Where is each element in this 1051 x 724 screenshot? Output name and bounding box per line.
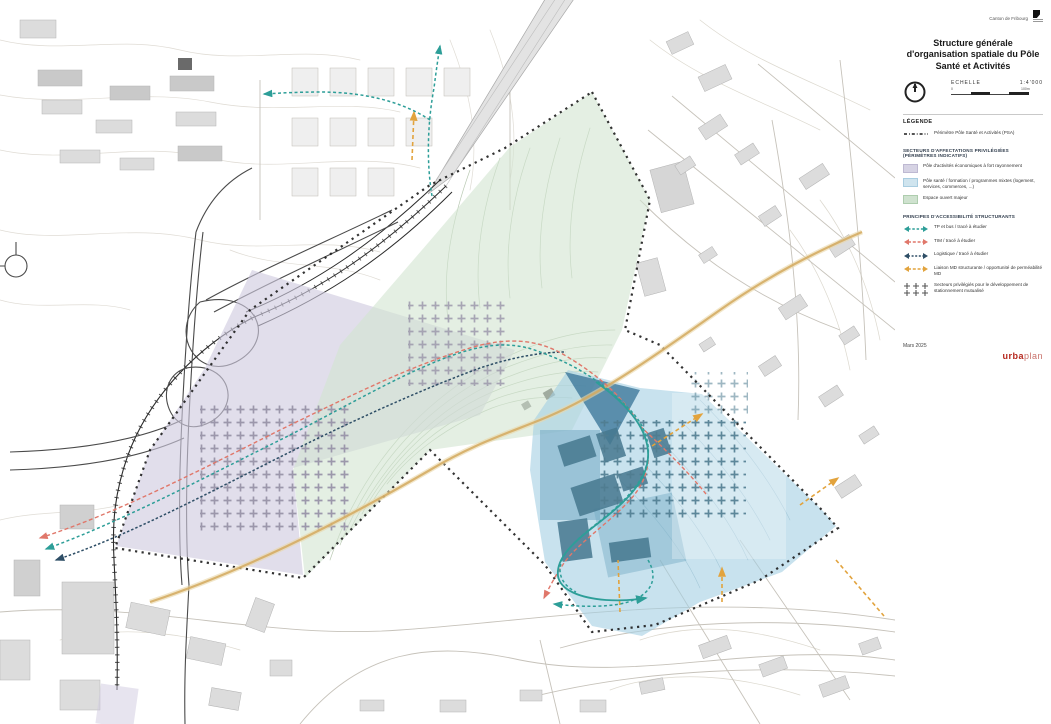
legend-item-label: TP et bus / tracé à étudier — [934, 224, 1043, 230]
perimeter-symbol — [903, 130, 929, 138]
canton-label: Canton de Fribourg — [989, 16, 1028, 21]
blue-swatch — [903, 178, 918, 187]
parking-sector-purple — [200, 402, 350, 534]
legend-item-label: Secteurs privilégiés pour le développeme… — [934, 282, 1043, 294]
legend-title: LÉGENDE — [903, 119, 1043, 125]
tim-arrow-symbol — [903, 238, 929, 246]
plus-grid-symbol — [903, 282, 929, 297]
legend-item-label: Pôle d'activités économiques à fort rayo… — [923, 163, 1043, 169]
legend-item-md: Liaison MD structurante / opportunité de… — [903, 265, 1043, 277]
urbaplan-logo: urbaplan — [903, 351, 1043, 361]
legend-item-tp: TP et bus / tracé à étudier — [903, 224, 1043, 233]
legend-item-label: Logistique / tracé à étudier — [934, 251, 1043, 257]
map-canvas — [0, 0, 895, 724]
scale-label: ECHELLE — [951, 80, 981, 86]
legend-panel: Canton de Fribourg Structure générale d'… — [895, 0, 1051, 724]
zone-purple-fragment — [95, 684, 138, 724]
legend-item-open-space: Espace ouvert majeur — [903, 195, 1043, 205]
north-arrow-icon — [903, 80, 927, 104]
tp-arrow-symbol — [903, 225, 929, 233]
legend-item-health: Pôle santé / formation / programmes mixt… — [903, 178, 1043, 190]
scale-block: ECHELLE 1:4'000 0 100m — [951, 80, 1043, 97]
legend-item-label: Pôle santé / formation / programmes mixt… — [923, 178, 1043, 190]
date-label: Mars 2025 — [903, 343, 1043, 349]
legend-item-label: Périmètre Pôle Santé et Activités (PSA) — [934, 130, 1043, 136]
scale-zero: 0 — [951, 87, 953, 91]
legend-item-label: Liaison MD structurante / opportunité de… — [934, 265, 1043, 277]
md-arrow-symbol — [903, 265, 929, 273]
legend-item-label: TIM / tracé à étudier — [934, 238, 1043, 244]
canton-fribourg-logo — [1033, 10, 1043, 23]
legend-item-logistics: Logistique / tracé à étudier — [903, 251, 1043, 260]
legend-item-parking: Secteurs privilégiés pour le développeme… — [903, 282, 1043, 298]
scale-value: 1:4'000 — [1020, 80, 1043, 86]
divider — [903, 114, 1043, 115]
page-title: Structure générale d'organisation spatia… — [903, 38, 1043, 72]
legend-item-perimeter: Périmètre Pôle Santé et Activités (PSA) — [903, 130, 1043, 139]
plan-sheet: Canton de Fribourg Structure générale d'… — [0, 0, 1051, 724]
legend-item-economic: Pôle d'activités économiques à fort rayo… — [903, 163, 1043, 173]
legend-item-tim: TIM / tracé à étudier — [903, 238, 1043, 247]
scale-end: 100m — [1021, 87, 1030, 91]
sectors-header: SECTEURS D'AFFECTATIONS PRIVILÉGIÉES (PÉ… — [903, 148, 1043, 158]
parking-sector-blue2 — [688, 372, 748, 418]
legend-item-label: Espace ouvert majeur — [923, 195, 1043, 201]
scale-bar: 0 100m — [951, 91, 1043, 97]
logistics-arrow-symbol — [903, 252, 929, 260]
purple-swatch — [903, 164, 918, 173]
principles-header: PRINCIPES D'ACCESSIBILITÉ STRUCTURANTS — [903, 214, 1043, 219]
green-swatch — [903, 195, 918, 204]
canton-header: Canton de Fribourg — [903, 10, 1043, 32]
